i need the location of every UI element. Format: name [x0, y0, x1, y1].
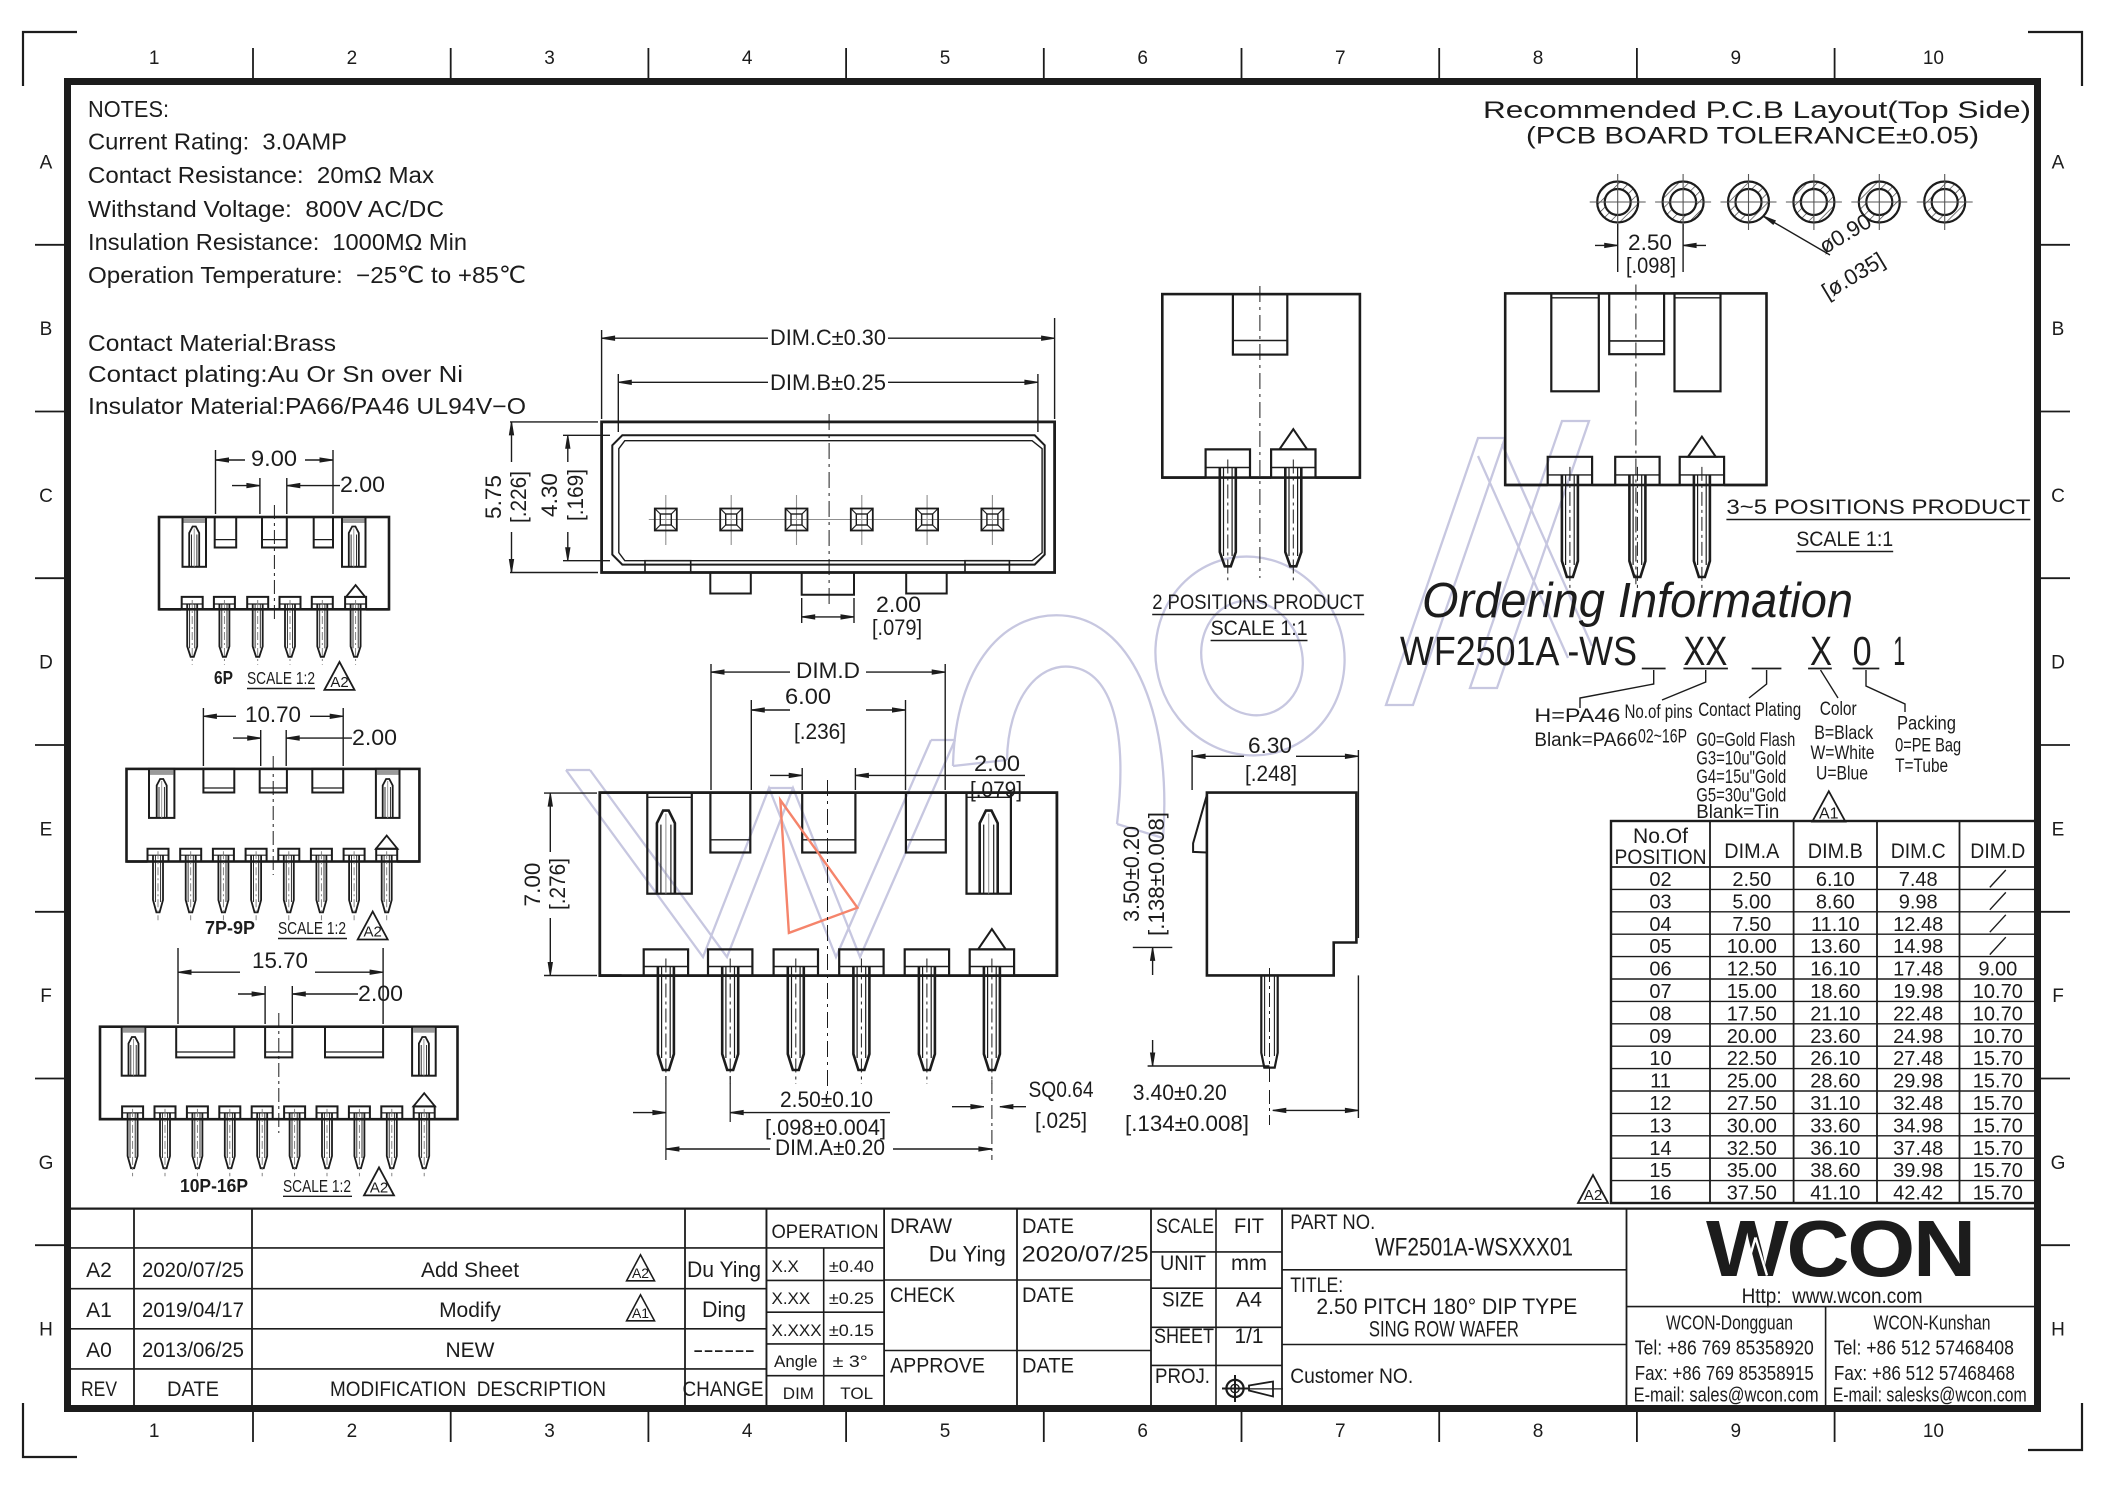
svg-text:1: 1 [1893, 628, 1905, 674]
svg-text:± 3°: ± 3° [833, 1352, 868, 1371]
svg-text:H: H [2051, 1320, 2065, 1341]
svg-text:8: 8 [1533, 48, 1544, 69]
svg-text:X.XXX: X.XXX [772, 1321, 822, 1340]
svg-text:D: D [39, 653, 53, 674]
svg-text:15.70: 15.70 [1973, 1071, 2023, 1093]
svg-text:W=White: W=White [1811, 743, 1875, 764]
svg-text:±0.15: ±0.15 [829, 1321, 874, 1340]
svg-text:30.00: 30.00 [1727, 1115, 1777, 1137]
svg-text:E: E [2052, 819, 2065, 840]
svg-text:WF2501A-WSXXX01: WF2501A-WSXXX01 [1375, 1234, 1573, 1262]
svg-text:5.75: 5.75 [481, 475, 506, 519]
svg-text:2.50: 2.50 [1628, 230, 1672, 255]
svg-text:02: 02 [1649, 869, 1671, 891]
svg-text:17.48: 17.48 [1893, 959, 1943, 981]
svg-text:28.60: 28.60 [1810, 1071, 1860, 1093]
svg-text:23.60: 23.60 [1810, 1026, 1860, 1048]
svg-text:OPERATION: OPERATION [772, 1222, 879, 1243]
svg-text:A1: A1 [86, 1299, 112, 1322]
svg-text:14: 14 [1649, 1138, 1671, 1160]
svg-text:A1: A1 [632, 1305, 649, 1321]
svg-text:29.98: 29.98 [1893, 1071, 1943, 1093]
svg-text:Color: Color [1820, 699, 1858, 720]
svg-text:37.50: 37.50 [1727, 1183, 1777, 1205]
svg-text:B: B [2052, 319, 2065, 340]
svg-text:WF2501A -WS: WF2501A -WS [1400, 628, 1637, 674]
svg-text:15.70: 15.70 [1973, 1183, 2023, 1205]
svg-text:C: C [39, 486, 53, 507]
svg-text:18.60: 18.60 [1810, 981, 1860, 1003]
svg-text:PART NO.: PART NO. [1290, 1211, 1375, 1234]
svg-text:XX: XX [1683, 628, 1727, 674]
svg-text:[.134±0.008]: [.134±0.008] [1125, 1111, 1249, 1136]
svg-text:7.00: 7.00 [520, 863, 545, 907]
svg-text:6: 6 [1137, 48, 1148, 69]
svg-text:A: A [2052, 152, 2065, 173]
svg-text:B=Black: B=Black [1814, 723, 1873, 744]
svg-text:D: D [2051, 653, 2065, 674]
svg-text:3: 3 [544, 1421, 555, 1442]
svg-text:10.70: 10.70 [245, 702, 301, 727]
svg-text:A: A [40, 152, 53, 173]
svg-text:32.50: 32.50 [1727, 1138, 1777, 1160]
svg-text:No.Of: No.Of [1633, 825, 1688, 848]
svg-text:A2: A2 [632, 1265, 649, 1281]
svg-text:9.00: 9.00 [1978, 959, 2017, 981]
svg-text:3: 3 [544, 48, 555, 69]
svg-text:DIM.C±0.30: DIM.C±0.30 [770, 325, 886, 350]
svg-text:X.X: X.X [772, 1257, 799, 1276]
svg-text:B: B [40, 319, 53, 340]
svg-text:SCALE: SCALE [1156, 1215, 1214, 1238]
svg-text:2013/06/25: 2013/06/25 [142, 1339, 244, 1362]
svg-text:12.48: 12.48 [1893, 914, 1943, 936]
svg-text:10P-16P: 10P-16P [180, 1176, 248, 1196]
svg-text:Recommended P.C.B Layout(Top S: Recommended P.C.B Layout(Top Side) [1483, 97, 2031, 124]
svg-text:7: 7 [1335, 1421, 1346, 1442]
svg-text:DIM.A±0.20: DIM.A±0.20 [775, 1135, 885, 1160]
svg-text:4.30: 4.30 [537, 473, 562, 517]
svg-text:15: 15 [1649, 1160, 1671, 1182]
svg-text:A2: A2 [86, 1259, 112, 1282]
svg-text:Du Ying: Du Ying [687, 1257, 761, 1282]
svg-text:F: F [40, 986, 52, 1007]
svg-text:REV: REV [81, 1378, 117, 1401]
svg-text:25.00: 25.00 [1727, 1071, 1777, 1093]
svg-text:35.00: 35.00 [1727, 1160, 1777, 1182]
svg-text:DRAW: DRAW [890, 1215, 952, 1238]
svg-text:Fax: +86 512 57468468: Fax: +86 512 57468468 [1834, 1363, 2015, 1385]
svg-text:CHANGE: CHANGE [683, 1378, 764, 1401]
svg-text:[.098]: [.098] [1626, 253, 1676, 278]
svg-text:14.98: 14.98 [1893, 936, 1943, 958]
svg-text:[.079]: [.079] [872, 615, 922, 640]
svg-text:C: C [2051, 486, 2065, 507]
svg-text:Blank=PA66: Blank=PA66 [1534, 730, 1637, 751]
svg-text:07: 07 [1649, 981, 1671, 1003]
svg-text:SCALE 1:2: SCALE 1:2 [278, 918, 346, 938]
svg-text:0: 0 [1853, 628, 1872, 674]
svg-text:2020/07/25: 2020/07/25 [1022, 1242, 1149, 1267]
svg-text:DIM.D: DIM.D [796, 658, 860, 683]
svg-text:22.50: 22.50 [1727, 1048, 1777, 1070]
svg-text:6.30: 6.30 [1248, 733, 1292, 758]
svg-text:A4: A4 [1236, 1289, 1262, 1312]
svg-text:E-mail: salesks@wcon.com: E-mail: salesks@wcon.com [1833, 1384, 2027, 1406]
svg-text:NEW: NEW [446, 1339, 495, 1362]
svg-text:[.079]: [.079] [970, 777, 1022, 802]
svg-text:7.50: 7.50 [1732, 914, 1771, 936]
svg-text:3.50±0.20: 3.50±0.20 [1119, 826, 1144, 922]
svg-text:10.00: 10.00 [1727, 936, 1777, 958]
svg-text:A2: A2 [370, 1179, 388, 1196]
svg-text:Ding: Ding [702, 1297, 746, 1322]
svg-text:10: 10 [1649, 1048, 1671, 1070]
svg-text:Ordering Information: Ordering Information [1422, 574, 1853, 628]
svg-text:[.248]: [.248] [1245, 761, 1297, 786]
svg-text:34.98: 34.98 [1893, 1115, 1943, 1137]
svg-text:E: E [40, 819, 53, 840]
svg-text:6.10: 6.10 [1816, 869, 1855, 891]
svg-text:DIM.B: DIM.B [1808, 840, 1863, 863]
svg-text:X.XX: X.XX [772, 1289, 811, 1308]
svg-text:DATE: DATE [1022, 1355, 1074, 1378]
svg-text:SCALE 1:1: SCALE 1:1 [1211, 617, 1308, 640]
svg-text:SING ROW WAFER: SING ROW WAFER [1369, 1316, 1519, 1341]
svg-text:Angle: Angle [774, 1352, 817, 1371]
svg-text:No.of pins: No.of pins [1625, 702, 1693, 723]
svg-text:9: 9 [1731, 1421, 1742, 1442]
svg-text:31.10: 31.10 [1810, 1093, 1860, 1115]
svg-text:Du Ying: Du Ying [929, 1242, 1006, 1267]
svg-text:5: 5 [940, 48, 951, 69]
svg-text:39.98: 39.98 [1893, 1160, 1943, 1182]
svg-text:Contact Resistance: 20mΩ Max: Contact Resistance: 20mΩ Max [88, 162, 435, 188]
svg-text:APPROVE: APPROVE [890, 1355, 985, 1378]
svg-text:1/1: 1/1 [1235, 1325, 1264, 1348]
svg-text:1: 1 [149, 48, 160, 69]
svg-text:T=Tube: T=Tube [1895, 756, 1948, 777]
svg-text:8: 8 [1533, 1421, 1544, 1442]
svg-text:PROJ.: PROJ. [1155, 1365, 1210, 1388]
svg-text:SQ0.64: SQ0.64 [1029, 1077, 1094, 1102]
svg-text:CHECK: CHECK [890, 1284, 955, 1307]
svg-text:15.70: 15.70 [1973, 1115, 2023, 1137]
svg-text:22.48: 22.48 [1893, 1003, 1943, 1025]
svg-text:16: 16 [1649, 1183, 1671, 1205]
svg-text:MODIFICATION DESCRIPTION: MODIFICATION DESCRIPTION [330, 1378, 606, 1401]
svg-text:A0: A0 [86, 1339, 112, 1362]
svg-text:mm: mm [1231, 1252, 1267, 1275]
svg-text:2020/07/25: 2020/07/25 [142, 1259, 244, 1282]
svg-text:04: 04 [1649, 914, 1671, 936]
svg-text:0=PE Bag: 0=PE Bag [1895, 736, 1961, 757]
svg-text:15.70: 15.70 [1973, 1138, 2023, 1160]
svg-text:38.60: 38.60 [1810, 1160, 1860, 1182]
svg-text:POSITION: POSITION [1615, 846, 1707, 869]
svg-text:13.60: 13.60 [1810, 936, 1860, 958]
svg-text:[.276]: [.276] [545, 858, 570, 910]
svg-text:5.00: 5.00 [1732, 891, 1771, 913]
svg-text:G: G [39, 1153, 54, 1174]
svg-text:A2: A2 [330, 674, 348, 691]
svg-text:5: 5 [940, 1421, 951, 1442]
svg-text:26.10: 26.10 [1810, 1048, 1860, 1070]
svg-text:13: 13 [1649, 1115, 1671, 1137]
svg-text:15.70: 15.70 [1973, 1048, 2023, 1070]
svg-text:3~5 POSITIONS PRODUCT: 3~5 POSITIONS PRODUCT [1726, 496, 2030, 519]
svg-text:NOTES:: NOTES: [88, 96, 169, 122]
svg-text:[.025]: [.025] [1035, 1108, 1087, 1133]
svg-text:10.70: 10.70 [1973, 1003, 2023, 1025]
svg-text:DIM.B±0.25: DIM.B±0.25 [770, 370, 886, 395]
svg-text:15.70: 15.70 [1973, 1093, 2023, 1115]
svg-text:Contact Material:Brass: Contact Material:Brass [88, 330, 336, 356]
svg-text:SHEET: SHEET [1154, 1325, 1214, 1348]
svg-text:A2: A2 [1584, 1187, 1602, 1204]
svg-text:06: 06 [1649, 959, 1671, 981]
svg-text:4: 4 [742, 48, 753, 69]
svg-text:Insulator Material:PA66/PA46 U: Insulator Material:PA66/PA46 UL94V−O [88, 393, 526, 419]
svg-text:11.10: 11.10 [1811, 914, 1860, 936]
svg-text:10: 10 [1923, 48, 1944, 69]
svg-text:------: ------ [693, 1337, 755, 1362]
svg-text:Tel: +86 512 57468408: Tel: +86 512 57468408 [1834, 1338, 2014, 1360]
svg-text:TOL: TOL [840, 1384, 873, 1403]
svg-text:6: 6 [1137, 1421, 1148, 1442]
svg-text:19.98: 19.98 [1893, 981, 1943, 1003]
svg-text:21.10: 21.10 [1810, 1003, 1860, 1025]
svg-text:Add Sheet: Add Sheet [421, 1259, 519, 1282]
svg-text:[.236]: [.236] [794, 719, 846, 744]
svg-text:33.60: 33.60 [1810, 1115, 1860, 1137]
svg-text:WCON: WCON [1706, 1204, 1974, 1293]
svg-text:SIZE: SIZE [1162, 1289, 1204, 1312]
svg-text:7.48: 7.48 [1899, 869, 1938, 891]
svg-text:6.00: 6.00 [785, 684, 831, 709]
svg-text:U=Blue: U=Blue [1816, 763, 1868, 784]
svg-text:WCON-Kunshan: WCON-Kunshan [1874, 1312, 1991, 1334]
svg-text:±0.25: ±0.25 [829, 1289, 874, 1308]
svg-text:02~16P: 02~16P [1638, 727, 1687, 748]
svg-text:2019/04/17: 2019/04/17 [142, 1299, 244, 1322]
svg-text:15.00: 15.00 [1727, 981, 1777, 1003]
svg-text:G: G [2051, 1153, 2066, 1174]
svg-text:Fax: +86 769 85358915: Fax: +86 769 85358915 [1635, 1363, 1814, 1385]
svg-text:DATE: DATE [167, 1378, 219, 1401]
svg-text:2: 2 [347, 1421, 358, 1442]
svg-text:10.70: 10.70 [1973, 1026, 2023, 1048]
svg-text:Packing: Packing [1897, 714, 1956, 735]
svg-text:H: H [39, 1320, 53, 1341]
svg-text:37.48: 37.48 [1893, 1138, 1943, 1160]
svg-text:Customer NO.: Customer NO. [1290, 1365, 1413, 1388]
svg-text:6P: 6P [214, 668, 233, 688]
svg-text:SCALE 1:2: SCALE 1:2 [247, 668, 315, 688]
svg-text:03: 03 [1649, 891, 1671, 913]
svg-text:A2: A2 [364, 924, 382, 941]
svg-text:7: 7 [1335, 48, 1346, 69]
svg-text:27.48: 27.48 [1893, 1048, 1943, 1070]
svg-text:12.50: 12.50 [1727, 959, 1777, 981]
svg-text:FIT: FIT [1234, 1215, 1264, 1238]
svg-text:36.10: 36.10 [1810, 1138, 1860, 1160]
svg-text:E-mail: sales@wcon.com: E-mail: sales@wcon.com [1634, 1384, 1819, 1406]
svg-text:10: 10 [1923, 1421, 1944, 1442]
svg-text:24.98: 24.98 [1893, 1026, 1943, 1048]
svg-text:X: X [1810, 628, 1832, 674]
svg-text:2.00: 2.00 [876, 592, 921, 617]
svg-text:17.50: 17.50 [1727, 1003, 1777, 1025]
svg-text:1: 1 [149, 1421, 160, 1442]
svg-text:H=PA46: H=PA46 [1534, 706, 1620, 727]
svg-text:F: F [2052, 986, 2064, 1007]
svg-text:2.00: 2.00 [352, 725, 397, 750]
svg-text:8.60: 8.60 [1816, 891, 1855, 913]
svg-text:9.00: 9.00 [251, 446, 297, 471]
svg-text:DATE: DATE [1022, 1215, 1074, 1238]
svg-text:2: 2 [347, 48, 358, 69]
svg-text:2.50: 2.50 [1732, 869, 1771, 891]
svg-text:DIM.C: DIM.C [1891, 840, 1946, 863]
svg-text:7P-9P: 7P-9P [205, 918, 255, 938]
svg-text:Withstand Voltage: 800V AC/DC: Withstand Voltage: 800V AC/DC [88, 196, 444, 222]
svg-text:08: 08 [1649, 1003, 1671, 1025]
svg-text:[.138±0.008]: [.138±0.008] [1144, 812, 1169, 936]
svg-text:SCALE 1:2: SCALE 1:2 [283, 1176, 351, 1196]
svg-text:Tel: +86 769 85358920: Tel: +86 769 85358920 [1635, 1338, 1814, 1360]
svg-text:UNIT: UNIT [1160, 1252, 1206, 1275]
svg-text:10.70: 10.70 [1973, 981, 2023, 1003]
svg-text:SCALE 1:1: SCALE 1:1 [1796, 528, 1893, 551]
svg-text:41.10: 41.10 [1810, 1183, 1860, 1205]
svg-text:±0.40: ±0.40 [829, 1257, 874, 1276]
svg-text:2.00: 2.00 [358, 981, 403, 1006]
svg-text:DIM.A: DIM.A [1724, 840, 1779, 863]
svg-text:15.70: 15.70 [252, 948, 308, 973]
svg-text:05: 05 [1649, 936, 1671, 958]
svg-text:DATE: DATE [1022, 1284, 1074, 1307]
svg-text:20.00: 20.00 [1727, 1026, 1777, 1048]
svg-text:Contact Plating: Contact Plating [1698, 700, 1801, 721]
svg-text:42.42: 42.42 [1893, 1183, 1943, 1205]
svg-text:16.10: 16.10 [1810, 959, 1860, 981]
svg-text:09: 09 [1649, 1026, 1671, 1048]
svg-text:(PCB BOARD TOLERANCE±0.05): (PCB BOARD TOLERANCE±0.05) [1526, 123, 1979, 150]
svg-text:9.98: 9.98 [1899, 891, 1938, 913]
svg-text:Contact plating:Au Or Sn over: Contact plating:Au Or Sn over Ni [88, 361, 463, 387]
svg-text:4: 4 [742, 1421, 753, 1442]
svg-text:Http: www.wcon.com: Http: www.wcon.com [1742, 1285, 1923, 1308]
svg-text:9: 9 [1731, 48, 1742, 69]
svg-text:Operation Temperature: −25℃ t: Operation Temperature: −25℃ to +85℃ [88, 262, 526, 288]
svg-text:2.00: 2.00 [974, 751, 1020, 776]
svg-text:WCON-Dongguan: WCON-Dongguan [1666, 1312, 1793, 1334]
svg-text:32.48: 32.48 [1893, 1093, 1943, 1115]
svg-text:15.70: 15.70 [1973, 1160, 2023, 1182]
svg-text:11: 11 [1650, 1071, 1671, 1093]
svg-text:27.50: 27.50 [1727, 1093, 1777, 1115]
svg-text:DIM: DIM [783, 1384, 814, 1403]
svg-text:2.00: 2.00 [340, 472, 385, 497]
svg-text:DIM.D: DIM.D [1970, 840, 2025, 863]
svg-text:[.226]: [.226] [506, 471, 531, 523]
svg-text:2.50±0.10: 2.50±0.10 [780, 1087, 873, 1112]
svg-text:Current Rating: 3.0AMP: Current Rating: 3.0AMP [88, 129, 347, 155]
svg-text:2 POSITIONS PRODUCT: 2 POSITIONS PRODUCT [1152, 591, 1364, 614]
svg-text:Insulation Resistance: 1000MΩ: Insulation Resistance: 1000MΩ Min [88, 229, 467, 255]
svg-text:Modify: Modify [439, 1299, 501, 1322]
svg-text:3.40±0.20: 3.40±0.20 [1133, 1080, 1227, 1105]
svg-text:12: 12 [1649, 1093, 1671, 1115]
svg-text:[.169]: [.169] [563, 469, 588, 521]
